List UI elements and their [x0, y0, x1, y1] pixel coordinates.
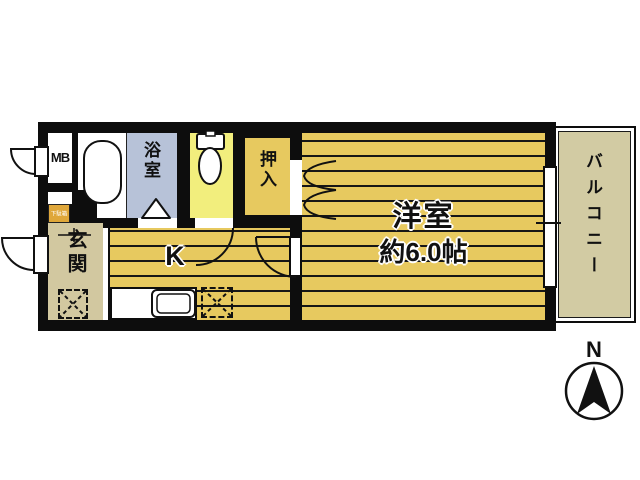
floor-plan: 下駄箱	[0, 0, 640, 480]
compass-north-label: N	[578, 339, 610, 361]
mb-door-swing-icon	[11, 149, 36, 174]
room-door-leaf	[289, 236, 302, 277]
shoe-cabinet-gap	[48, 192, 72, 204]
bathroom-door-sill	[138, 218, 177, 228]
shoe-cabinet-label: 下駄箱	[51, 209, 67, 217]
western-room-size: 約6.0帖	[302, 239, 545, 265]
bathroom-label: 浴室	[142, 141, 159, 181]
balcony-label: バルコニー	[584, 152, 601, 282]
wall-corner-block	[72, 190, 97, 223]
toilet-room	[190, 133, 233, 218]
washer-space	[58, 289, 88, 319]
refrigerator-space	[201, 287, 233, 318]
shoe-cabinet: 下駄箱	[48, 204, 70, 223]
kitchen-counter	[110, 287, 197, 320]
toilet-door-sill	[195, 218, 233, 228]
compass-circle	[566, 363, 622, 419]
kitchen-label: K	[155, 243, 195, 270]
meter-box-label: MB	[48, 151, 72, 164]
entrance-door-swing-icon	[2, 238, 34, 270]
compass-north-arrow-icon	[577, 366, 611, 414]
closet-opening	[290, 160, 302, 215]
entrance-label: 玄関	[65, 229, 85, 277]
closet-label: 押入	[258, 150, 275, 190]
western-room-label: 洋室 約6.0帖	[302, 203, 545, 265]
balcony-window	[543, 166, 557, 288]
western-room-name: 洋室	[302, 203, 545, 232]
